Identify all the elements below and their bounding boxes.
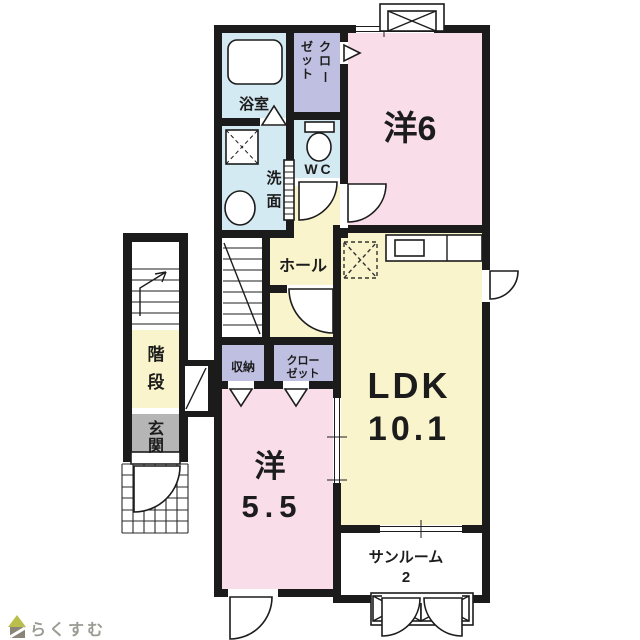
annex-staircase-block (122, 233, 214, 533)
svg-text:ト: ト (301, 67, 313, 81)
hall-label: ホール (279, 257, 327, 275)
stairs-label-char1: 階 (148, 345, 165, 364)
entrance-door-swing (134, 466, 180, 512)
floorplan-page: 浴室 洗 面 WC ク ロ ー ゼ ッ ト 洋6 ホール LDK 10.1 収納… (0, 0, 640, 640)
washbasin-icon (225, 191, 255, 225)
svg-text:ク: ク (319, 40, 331, 54)
svg-text:ゼ: ゼ (301, 39, 313, 54)
top-shutter-box (380, 4, 444, 31)
ldk-label: LDK (368, 365, 451, 406)
floorplan-drawing: 浴室 洗 面 WC ク ロ ー ゼ ッ ト 洋6 ホール LDK 10.1 収納… (0, 0, 640, 640)
closet-lower-label-line2: ゼット (287, 366, 320, 380)
sunroom-size-label: 2 (402, 569, 410, 586)
entrance-label-char2: 関 (148, 437, 164, 455)
sunroom-label: サンルーム (369, 549, 444, 566)
kitchen-sink-icon (395, 240, 424, 256)
washroom-label-char1: 洗 (266, 169, 281, 187)
washing-machine-icon (226, 130, 258, 164)
storage-label: 収納 (231, 359, 255, 374)
stairs-area (132, 330, 179, 408)
washroom-label-char2: 面 (266, 193, 281, 210)
toilet-icon (305, 122, 334, 161)
logo-text: らくすむ (30, 621, 106, 639)
wc-label: WC (304, 161, 333, 177)
house-icon (8, 615, 26, 638)
interior-staircase (223, 243, 262, 334)
western55-size-label: 5.5 (241, 489, 302, 524)
bath-label: 浴室 (239, 95, 269, 113)
svg-text:ロ: ロ (319, 54, 331, 68)
western55-exterior-door-swing (230, 597, 272, 639)
western55-label: 洋 (255, 449, 286, 484)
ldk-exterior-door-swing (490, 271, 518, 299)
kitchen-counter (386, 235, 482, 261)
sunroom-exterior-doors (371, 593, 473, 636)
rakusumu-logo: らくすむ (8, 615, 106, 639)
bathtub-icon (228, 40, 282, 84)
annex-side-door (179, 360, 214, 417)
ldk-size-label: 10.1 (368, 410, 450, 448)
western6-label: 洋6 (384, 110, 437, 148)
stairs-label-char2: 段 (148, 372, 165, 392)
svg-text:ッ: ッ (301, 53, 313, 67)
svg-text:ー: ー (318, 71, 332, 83)
closet-lower-label-line1: クロー (287, 354, 320, 367)
entrance-label-char1: 玄 (148, 419, 164, 438)
